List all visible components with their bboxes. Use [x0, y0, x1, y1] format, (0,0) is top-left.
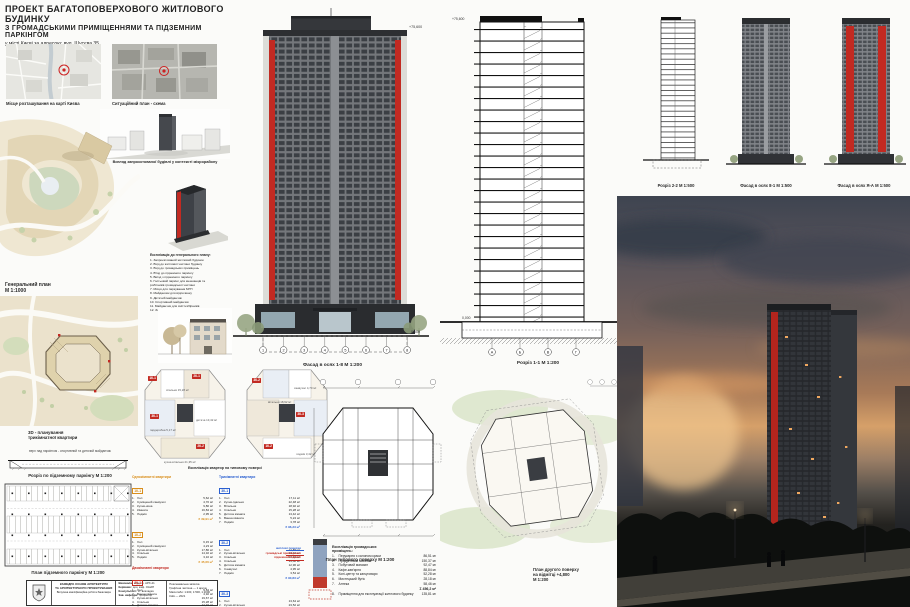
genplan-drawing-panel — [0, 296, 138, 426]
genplan-render — [0, 112, 140, 282]
kyiv-map-drawing — [6, 44, 101, 99]
room-label: вітальня 18,92 м² — [268, 400, 291, 404]
apartment-category: Двокімнатні квартири — [132, 566, 213, 570]
small-section-drawing — [641, 12, 711, 178]
unit-tag: 3К-1 — [150, 414, 159, 419]
apartment-unit-name: 1К-1 — [132, 488, 143, 494]
unit-tag: 2К-1 — [192, 374, 201, 379]
parking-plan — [4, 483, 132, 567]
dusk-rendering-drawing — [617, 196, 910, 607]
apartment-3d-caption-l2: трикімнатної квартири — [28, 435, 113, 440]
apartment-unit-name: 3К-3 — [219, 591, 230, 597]
genplan-legend-title: Експлікація до генерального плану: — [150, 253, 234, 257]
apartment-unit-total: Σ 39,91 м² — [132, 517, 213, 521]
main-elevation-drawing: +75,600 0,000 1 2 3 4 5 6 7 8 — [233, 6, 429, 364]
public-explication-total: Σ 456,2 м² — [332, 587, 436, 591]
building-axon — [148, 173, 228, 251]
elevation-level-top: +75,600 — [409, 25, 422, 29]
unit-tag: 3К-3 — [296, 412, 305, 417]
section-level-zero: 0,000 — [462, 316, 471, 320]
genplan-drawing — [0, 296, 138, 426]
small-elevation-rear — [726, 12, 806, 178]
unit-tag: 2К-2 — [196, 444, 205, 449]
public-explication-title-l2: приміщень: — [332, 549, 436, 553]
situation-map — [112, 44, 217, 99]
unit-tag: 1К-2 — [264, 444, 273, 449]
axis-label: 1 — [262, 348, 264, 352]
second-floor-plan-drawing — [440, 372, 636, 564]
axis-label: 5 — [344, 348, 346, 352]
apartment-unit-name: 2К-1 — [132, 580, 143, 586]
axis-label: 8 — [406, 348, 408, 352]
genplan-caption-block: Генеральний план М 1:1000 — [5, 282, 75, 294]
parking-section-note: верх над паркінгом - спортивний та дитяч… — [14, 449, 126, 453]
university-crest-icon — [32, 584, 46, 602]
apartment-room-cell: Лоджія — [137, 556, 202, 560]
note-number: 8. — [332, 592, 337, 597]
apartment-room-cell: Лоджія — [137, 513, 202, 517]
axis-label: В — [547, 350, 550, 354]
situation-map-caption: Ситуаційний план - схема — [112, 101, 217, 106]
street-view — [158, 308, 232, 363]
parking-section-caption: Розріз по підземному паркінгу М 1:200 — [14, 473, 126, 478]
small-elevation-side-drawing — [824, 12, 906, 178]
apartments-title: Експлікація квартир на типовому поверсі — [140, 466, 310, 470]
unit-tag: 3К-2 — [252, 378, 261, 383]
title-block: ПРОЕКТ БАГАТОПОВЕРХОВОГО ЖИТЛОВОГО БУДИН… — [5, 4, 235, 47]
main-elevation: +75,600 0,000 1 2 3 4 5 6 7 8 — [233, 6, 429, 364]
room-label: дитяча 13,42 м² — [196, 418, 217, 422]
apartment-unit-name: 3К-2 — [219, 540, 230, 546]
axis-label: А — [491, 350, 494, 354]
small-section-view — [641, 12, 711, 178]
apartment-unit: 2К-11.Хол9,84 м²2.Ванна кімната4,92 м²3.… — [132, 571, 213, 607]
apartments-title-l2: на типовому поверсі — [225, 466, 262, 470]
apartment-unit-total: Σ 96,23 м² — [219, 525, 300, 529]
apartment-unit: 3К-31.Хол13,64 м²2.Кухня-вітальня23,52 м… — [219, 582, 300, 607]
small-section-caption: Розріз 2-2 М 1:500 — [633, 183, 719, 188]
apartment-room-cell: Лоджія — [224, 521, 289, 525]
street-view-drawing — [158, 308, 232, 363]
unit-tag: 1К-1 — [148, 376, 157, 381]
stamp-crest-cell — [27, 581, 51, 605]
callout-line-red1 — [286, 555, 304, 556]
list-item: 7.Аптека58,46 м² — [332, 582, 436, 587]
project-title-line2: З ГРОМАДСЬКИМИ ПРИМІЩЕННЯМИ ТА ПІДЗЕМНИМ… — [5, 25, 235, 39]
axis-label: 3 — [303, 348, 305, 352]
small-elevation-side-caption: Фасад в осях Я-А М 1:500 — [818, 183, 910, 188]
small-elevation-rear-drawing — [726, 12, 806, 178]
parking-section-drawing — [8, 455, 128, 471]
apartment-unit: 1К-11.Хол5,62 м²2.Суміщений санвузол4,70… — [132, 479, 213, 521]
list-cell: Аптека — [339, 582, 422, 587]
main-section: +75,600 0,000 А Б В Г — [432, 6, 628, 360]
genplan-legend: Експлікація до генерального плану: 1. За… — [150, 253, 234, 312]
apartment-unit: 1К-21.Хол6,15 м²2.Суміщений санвузол4,23… — [132, 523, 213, 565]
main-section-drawing: +75,600 0,000 А Б В Г — [432, 6, 628, 360]
axis-label: 4 — [324, 348, 326, 352]
apartment-room-cell: 7. — [219, 521, 223, 525]
second-floor-plan — [440, 372, 636, 564]
axis-label: 7 — [386, 348, 388, 352]
axis-label: 6 — [365, 348, 367, 352]
note-area: 135,81 м² — [422, 592, 436, 597]
axis-label: 2 — [283, 348, 285, 352]
elevation-level-zero: 0,000 — [411, 330, 420, 334]
typical-plan-drawing — [306, 368, 446, 554]
apartment-unit-name: 1К-2 — [132, 532, 143, 538]
typical-plan — [306, 368, 446, 554]
public-explication-note: 8. Приміщення для експлуатації житлового… — [332, 592, 436, 597]
list-cell: 58,46 м² — [423, 582, 436, 587]
small-elevation-side — [824, 12, 906, 178]
genplan-scale: М 1:1000 — [5, 288, 75, 294]
scheme-callouts: житлові поверхигромадські приміщенняпідз… — [248, 546, 301, 560]
apartment-room-cell: 5. — [132, 513, 136, 517]
apartment-room-cell: 7. — [219, 572, 223, 576]
apartment-category: Трикімнатні квартири — [219, 475, 300, 479]
second-plan-caption: План другого поверху на відмітці +4,800 … — [533, 567, 613, 582]
apartment-unit: 3К-11.Хол17,11 м²2.Кухня-їдальня22,48 м²… — [219, 479, 300, 529]
parking-section — [8, 455, 128, 471]
apartment-cluster-left: 1К-1 2К-1 3К-1 2К-2 спальня 15,28 м² дит… — [136, 356, 234, 472]
apartment-room-cell: Лоджія — [224, 572, 289, 576]
apartment-column: Трикімнатні квартири3К-11.Хол17,11 м²2.К… — [219, 473, 300, 605]
apartment-3d-caption: 3D - планування трикімнатної квартири — [28, 430, 113, 440]
stamp-dept-cell: КАФЕДРА ОСНОВ АРХІТЕКТУРИ ТА АРХІТЕКТУРН… — [51, 581, 115, 605]
apartment-room-row: 7.Лоджія3,78 м² — [219, 521, 300, 525]
project-title-line1: ПРОЕКТ БАГАТОПОВЕРХОВОГО ЖИТЛОВОГО БУДИН… — [5, 4, 235, 24]
apartment-room-cell: 5. — [132, 556, 136, 560]
note-text: Приміщення для експлуатації житлового бу… — [339, 592, 421, 597]
apartment-category: Однокімнатні квартири — [132, 475, 213, 479]
genplan-render-drawing — [0, 112, 140, 282]
apartment-explication: Однокімнатні квартири1К-11.Хол5,62 м²2.С… — [132, 473, 300, 605]
building-axon-drawing — [148, 173, 228, 251]
section-level-top: +75,600 — [452, 17, 464, 21]
second-plan-caption-l3: М 1:200 — [533, 577, 613, 582]
apartment-unit-total: Σ 90,83 м² — [219, 576, 300, 580]
public-explication: Експлікація громадських приміщень: 1.Пер… — [332, 545, 436, 597]
room-label: гардеробна 5,17 м² — [150, 428, 176, 432]
main-section-caption: Розріз 1-1 М 1:200 — [498, 361, 578, 366]
genplan-legend-list: 1. Запроєктований житловий будинок2. Вхі… — [150, 258, 234, 312]
apartments-title-l1: Експлікація квартир — [188, 466, 224, 470]
kyiv-map — [6, 44, 101, 99]
apartment-room-cell: 3,78 м² — [290, 521, 300, 525]
axis-label: Г — [575, 350, 577, 354]
apartment-unit-total: Σ 45,66 м² — [132, 560, 213, 564]
dusk-rendering — [617, 196, 910, 607]
kyiv-map-caption: Місце розташування на карті Києва — [6, 101, 101, 106]
callout-line-blue — [286, 550, 304, 551]
list-cell: 7. — [332, 582, 337, 587]
stamp-dept-line2: ТА АРХІТЕКТУРНОГО ПРОЄКТУВАННЯ — [54, 586, 113, 590]
room-label: кухня-вітальня 21,35 м² — [164, 460, 196, 464]
apartment-column: Однокімнатні квартири1К-11.Хол5,62 м²2.С… — [132, 473, 213, 605]
apartment-unit-name: 3К-1 — [219, 488, 230, 494]
situation-map-drawing — [112, 44, 217, 99]
room-label: спальня 15,28 м² — [166, 388, 189, 392]
parking-plan-caption: План підземного паркінгу М 1:200 — [18, 570, 118, 575]
public-explication-list: 1.Перукарня з салоном краси86,51 м²2.Про… — [332, 554, 436, 586]
stamp-subject: Випускна кваліфікаційна робота бакалавра — [54, 591, 113, 595]
small-elevation-rear-caption: Фасад в осях 8-1 М 1:500 — [718, 183, 814, 188]
parking-plan-drawing — [4, 483, 132, 567]
poster-board: ПРОЕКТ БАГАТОПОВЕРХОВОГО ЖИТЛОВОГО БУДИН… — [0, 0, 910, 607]
